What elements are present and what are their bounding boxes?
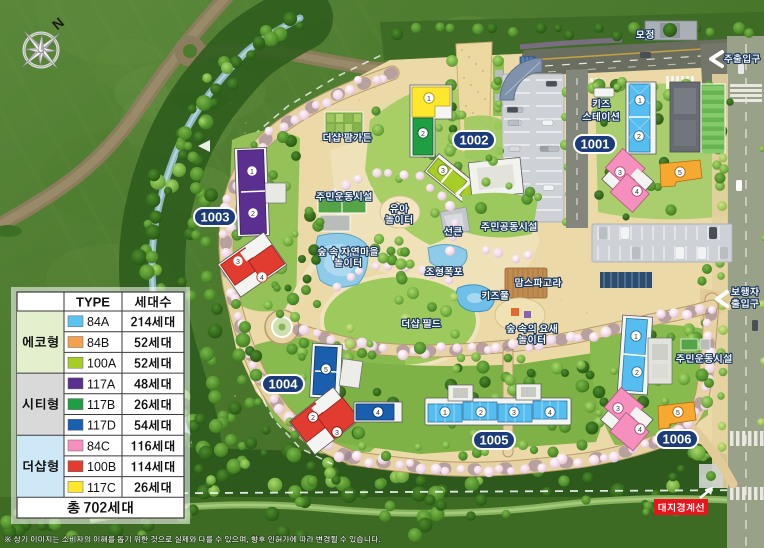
svg-text:4: 4 (548, 410, 552, 417)
svg-text:1005: 1005 (480, 433, 509, 448)
svg-text:2: 2 (479, 410, 483, 417)
svg-text:84C: 84C (87, 439, 110, 453)
svg-text:2: 2 (311, 415, 315, 422)
svg-text:2: 2 (637, 134, 641, 141)
svg-text:4: 4 (638, 427, 642, 434)
svg-text:3: 3 (512, 410, 516, 417)
svg-text:1: 1 (634, 334, 638, 341)
svg-text:2: 2 (635, 370, 639, 377)
svg-text:1001: 1001 (581, 137, 610, 152)
svg-text:3: 3 (616, 406, 620, 413)
svg-text:117C: 117C (87, 481, 116, 495)
svg-text:84A: 84A (87, 315, 110, 329)
svg-text:5: 5 (678, 170, 682, 177)
svg-text:3: 3 (236, 259, 240, 266)
svg-text:2: 2 (251, 211, 255, 218)
svg-text:1: 1 (427, 96, 431, 103)
svg-text:2: 2 (421, 131, 425, 138)
svg-text:100A: 100A (87, 357, 117, 371)
svg-text:TYPE: TYPE (76, 295, 110, 310)
svg-text:1: 1 (638, 98, 642, 105)
svg-text:84B: 84B (87, 336, 109, 350)
svg-text:5: 5 (676, 410, 680, 417)
svg-text:117A: 117A (87, 377, 116, 391)
svg-text:1002: 1002 (460, 133, 489, 148)
svg-text:5: 5 (324, 367, 328, 374)
svg-text:117D: 117D (87, 419, 116, 433)
svg-text:1004: 1004 (269, 377, 299, 392)
svg-text:3: 3 (618, 170, 622, 177)
svg-text:3: 3 (441, 168, 445, 175)
svg-text:4: 4 (376, 410, 380, 417)
svg-text:1: 1 (250, 169, 254, 176)
svg-text:1: 1 (443, 410, 447, 417)
svg-text:1003: 1003 (201, 210, 230, 225)
svg-text:117B: 117B (87, 398, 115, 412)
svg-text:4: 4 (635, 189, 639, 196)
svg-text:1006: 1006 (663, 432, 692, 447)
svg-text:100B: 100B (87, 460, 116, 474)
svg-text:3: 3 (335, 430, 339, 437)
svg-text:4: 4 (260, 275, 264, 282)
